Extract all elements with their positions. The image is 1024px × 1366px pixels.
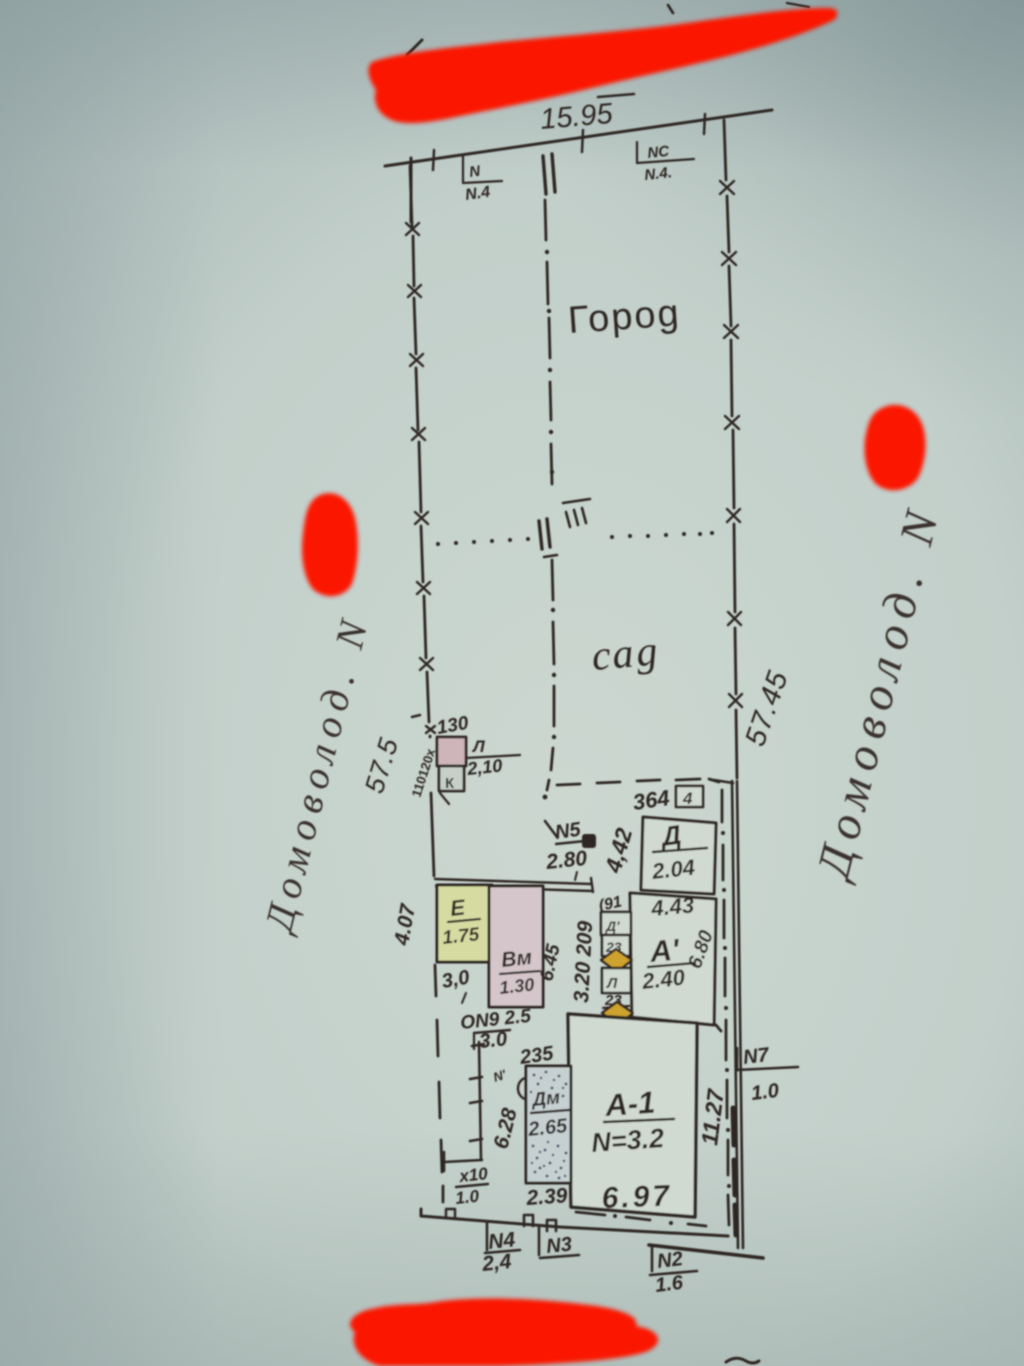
svg-text:6.97: 6.97: [601, 1180, 672, 1215]
svg-text:Вм: Вм: [500, 946, 533, 972]
svg-text:Д': Д': [605, 918, 620, 934]
svg-text:2.80: 2.80: [544, 847, 588, 874]
svg-text:3.20 209: 3.20 209: [570, 920, 597, 1003]
svg-text:4: 4: [682, 789, 693, 808]
svg-text:Л: Л: [471, 737, 485, 756]
svg-text:1.0: 1.0: [454, 1187, 480, 1208]
svg-text:2.40: 2.40: [640, 965, 687, 995]
svg-text:К: К: [445, 775, 455, 792]
svg-text:2.39: 2.39: [525, 1184, 569, 1210]
svg-text:А-1: А-1: [603, 1085, 656, 1123]
svg-text:N3: N3: [545, 1233, 573, 1258]
svg-text:1.6: 1.6: [654, 1272, 685, 1297]
svg-text:1.75: 1.75: [441, 924, 480, 949]
svg-text:N5: N5: [554, 818, 583, 843]
svg-text:2.04: 2.04: [650, 855, 696, 884]
svg-text:2,10: 2,10: [465, 755, 503, 779]
svg-text:NC: NC: [647, 143, 671, 162]
svg-text:N7: N7: [742, 1044, 771, 1069]
svg-text:2.65: 2.65: [526, 1115, 569, 1141]
svg-text:15.95: 15.95: [539, 98, 615, 136]
svg-text:1.0: 1.0: [750, 1080, 780, 1105]
svg-text:х10: х10: [457, 1164, 489, 1186]
svg-text:4.43: 4.43: [649, 892, 695, 921]
svg-text:364: 364: [631, 785, 671, 815]
svg-text:N2: N2: [656, 1248, 684, 1273]
svg-text:1.30: 1.30: [498, 974, 535, 998]
svg-text:Гороg: Гороg: [567, 292, 682, 342]
svg-text:саg: саg: [590, 628, 662, 680]
svg-text:3.0: 3.0: [478, 1028, 508, 1053]
svg-text:N=3.2: N=3.2: [590, 1123, 665, 1158]
svg-text:N.4.: N.4.: [644, 164, 673, 184]
svg-text:N.4: N.4: [464, 184, 491, 204]
svg-text:Л: Л: [606, 975, 618, 992]
svg-text:2,4: 2,4: [480, 1250, 513, 1276]
